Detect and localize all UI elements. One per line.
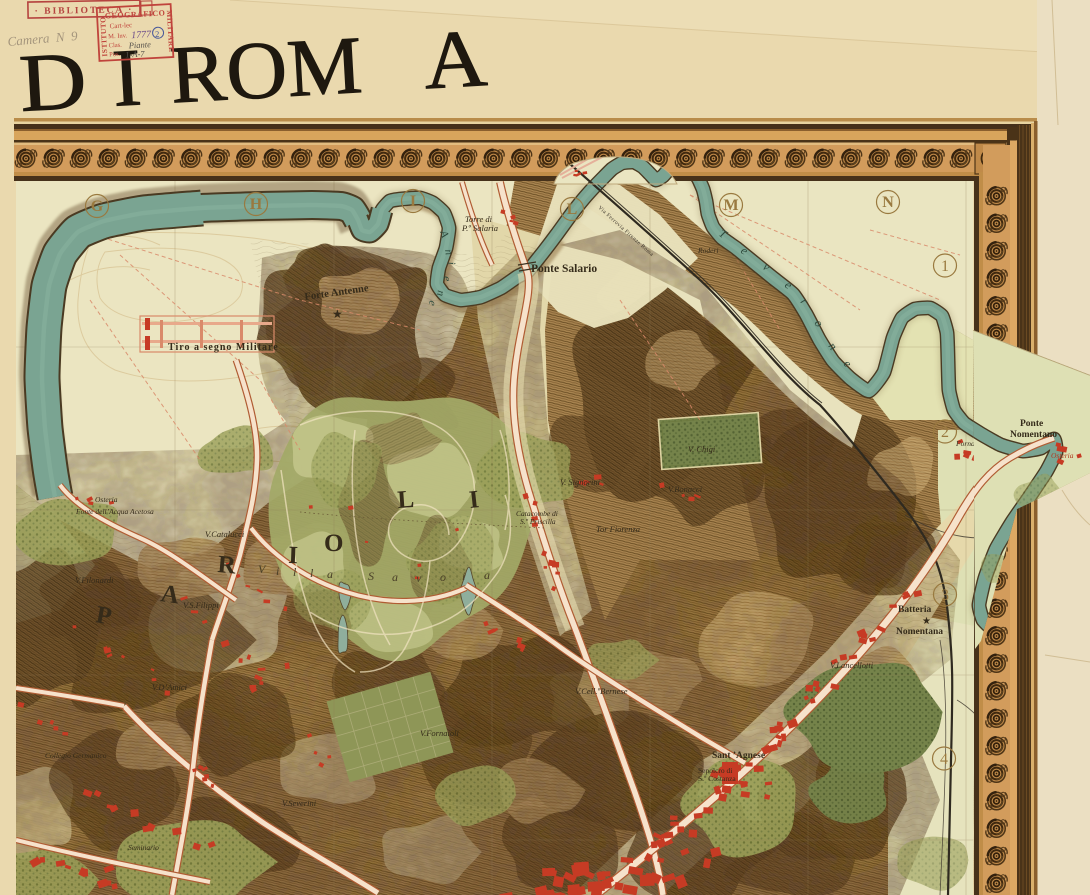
svg-text:2: 2 — [941, 424, 949, 441]
svg-text:a: a — [327, 567, 333, 581]
svg-text:V. Signorini: V. Signorini — [560, 477, 601, 487]
svg-text:S.º Priscilla: S.º Priscilla — [520, 517, 556, 526]
svg-text:M: M — [723, 197, 738, 214]
svg-text:A: A — [159, 580, 181, 609]
svg-text:O: O — [324, 530, 343, 557]
svg-text:Cart-lec: Cart-lec — [109, 21, 132, 30]
svg-text:Nomentana: Nomentana — [896, 627, 943, 637]
svg-text:Tiro a segno Militare: Tiro a segno Militare — [168, 342, 279, 353]
svg-text:★: ★ — [922, 616, 931, 627]
svg-text:★: ★ — [332, 307, 343, 321]
svg-text:v: v — [416, 571, 422, 585]
svg-text:Ponte: Ponte — [1020, 419, 1043, 429]
svg-text:Seminario: Seminario — [128, 843, 159, 852]
svg-text:Osteria: Osteria — [95, 495, 118, 504]
svg-text:V.Lancellotti: V.Lancellotti — [830, 660, 874, 670]
svg-text:Tor Fiorenza: Tor Fiorenza — [596, 524, 640, 534]
svg-text:1-A-7: 1-A-7 — [125, 49, 146, 60]
svg-text:V.Catalucci: V.Catalucci — [205, 529, 245, 539]
svg-text:G: G — [91, 198, 104, 215]
svg-text:M. Inv.: M. Inv. — [108, 32, 128, 40]
svg-text:1: 1 — [941, 258, 949, 275]
svg-text:Clas.: Clas. — [109, 42, 123, 50]
svg-text:4: 4 — [940, 751, 948, 768]
svg-text:P.º Salaria: P.º Salaria — [461, 223, 498, 233]
svg-text:3: 3 — [941, 587, 949, 604]
svg-text:D: D — [17, 34, 89, 129]
svg-text:V.Filonardi: V.Filonardi — [75, 575, 114, 585]
svg-text:Collegio Germanico: Collegio Germanico — [45, 751, 107, 760]
svg-text:Fonte dell’Acqua Acetosa: Fonte dell’Acqua Acetosa — [75, 507, 154, 516]
svg-text:A: A — [421, 12, 489, 106]
svg-text:H: H — [250, 196, 263, 213]
svg-text:I: I — [410, 193, 416, 210]
svg-text:L: L — [567, 201, 578, 218]
svg-text:Sant ’Agnese: Sant ’Agnese — [712, 751, 765, 761]
svg-text:S: S — [368, 569, 374, 583]
svg-text:L: L — [397, 486, 416, 514]
svg-text:Nomentano: Nomentano — [1010, 430, 1057, 440]
svg-text:V.Fornaioli: V.Fornaioli — [420, 728, 459, 738]
svg-text:a: a — [484, 568, 490, 582]
svg-text:Pos.: Pos. — [109, 51, 121, 59]
svg-text:Roderi: Roderi — [697, 246, 718, 255]
svg-text:a: a — [392, 570, 398, 584]
svg-text:V.Bonacci: V.Bonacci — [668, 484, 703, 494]
svg-text:ROM: ROM — [168, 19, 365, 121]
svg-text:V.Cell.ºBernese: V.Cell.ºBernese — [575, 686, 628, 696]
svg-text:i: i — [276, 564, 279, 578]
svg-text:N: N — [882, 194, 894, 211]
svg-text:o: o — [440, 570, 446, 584]
svg-text:Osteria: Osteria — [1051, 451, 1074, 460]
svg-text:2: 2 — [155, 29, 160, 39]
svg-text:Batteria: Batteria — [898, 605, 931, 615]
svg-text:S.º Costanza: S.º Costanza — [698, 774, 736, 783]
svg-text:V.Severini: V.Severini — [282, 798, 317, 808]
svg-text:V.S.Filippi: V.S.Filippi — [183, 600, 219, 610]
svg-text:R: R — [216, 551, 237, 580]
svg-text:V. Chigi: V. Chigi — [688, 444, 716, 454]
svg-text:V.D’Amici: V.D’Amici — [152, 682, 188, 692]
svg-text:Ponte Salario: Ponte Salario — [531, 263, 597, 275]
svg-text:i: i — [462, 569, 465, 583]
